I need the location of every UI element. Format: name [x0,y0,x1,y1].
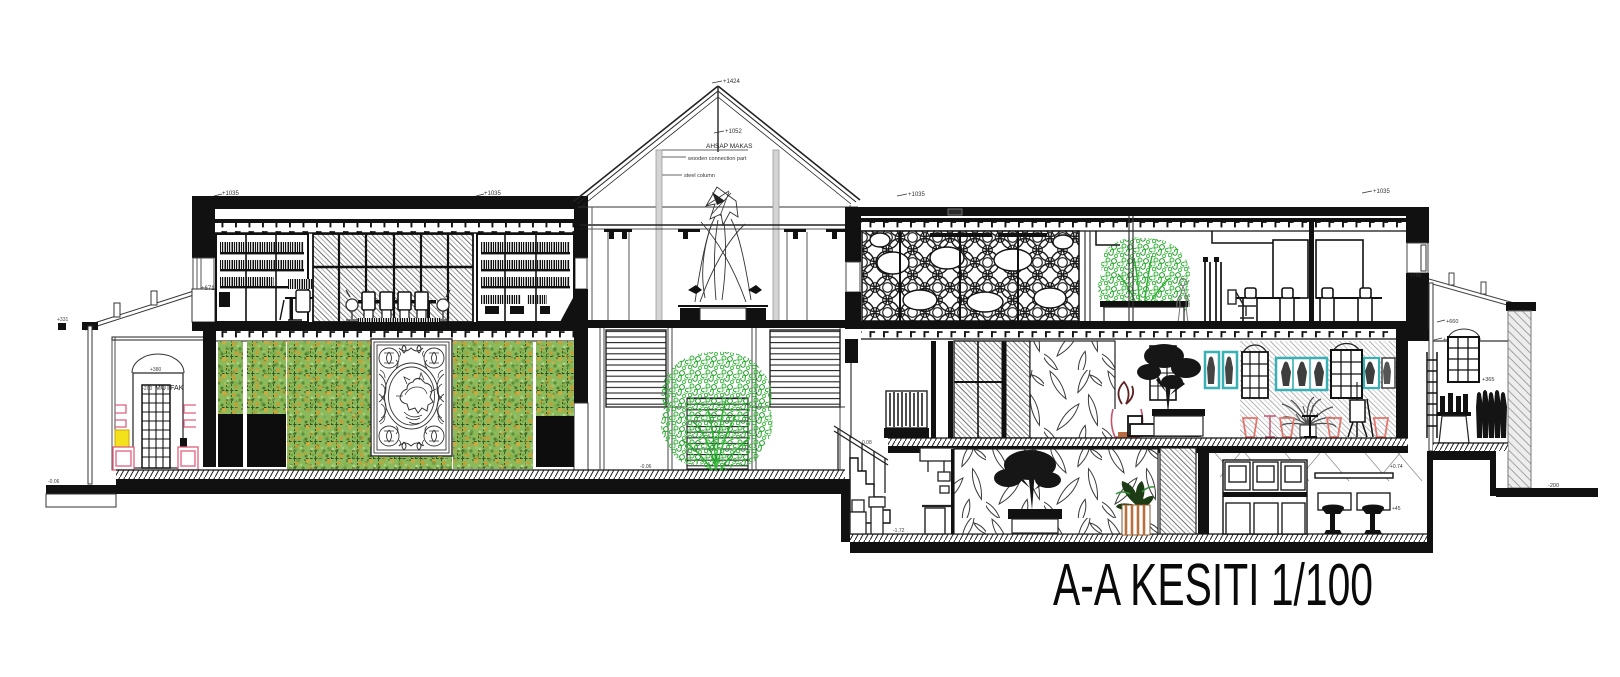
svg-text:+660: +660 [1446,319,1458,325]
svg-text:+45: +45 [1392,506,1401,512]
svg-text:-0.06: -0.06 [640,464,652,470]
svg-text:-0.06: -0.06 [48,479,60,485]
svg-text:-200: -200 [1548,483,1559,489]
svg-text:+380: +380 [150,367,161,373]
svg-text:A-A KESITI 1/100: A-A KESITI 1/100 [1053,552,1373,618]
svg-text:+1035: +1035 [908,192,926,198]
svg-text:+671: +671 [201,286,215,292]
svg-text:+331: +331 [57,317,68,323]
svg-text:wooden connection part: wooden connection part [687,156,747,162]
svg-text:+0.74: +0.74 [1390,464,1403,470]
svg-text:+1035: +1035 [1373,189,1391,195]
svg-text:+1424: +1424 [723,79,741,85]
svg-text:-1.72: -1.72 [893,528,905,534]
svg-text:+750: +750 [1410,273,1421,279]
svg-text:+1035: +1035 [222,191,240,197]
svg-text:+1052: +1052 [725,129,743,135]
svg-text:MUTFAK: MUTFAK [155,385,184,392]
svg-text:AHSAP MAKAS: AHSAP MAKAS [706,143,753,150]
svg-text:+365: +365 [1482,377,1494,383]
svg-text:steel column: steel column [684,173,715,179]
svg-text:+200: +200 [141,386,152,392]
svg-text:+1035: +1035 [484,191,502,197]
svg-text:0.08: 0.08 [862,440,872,446]
